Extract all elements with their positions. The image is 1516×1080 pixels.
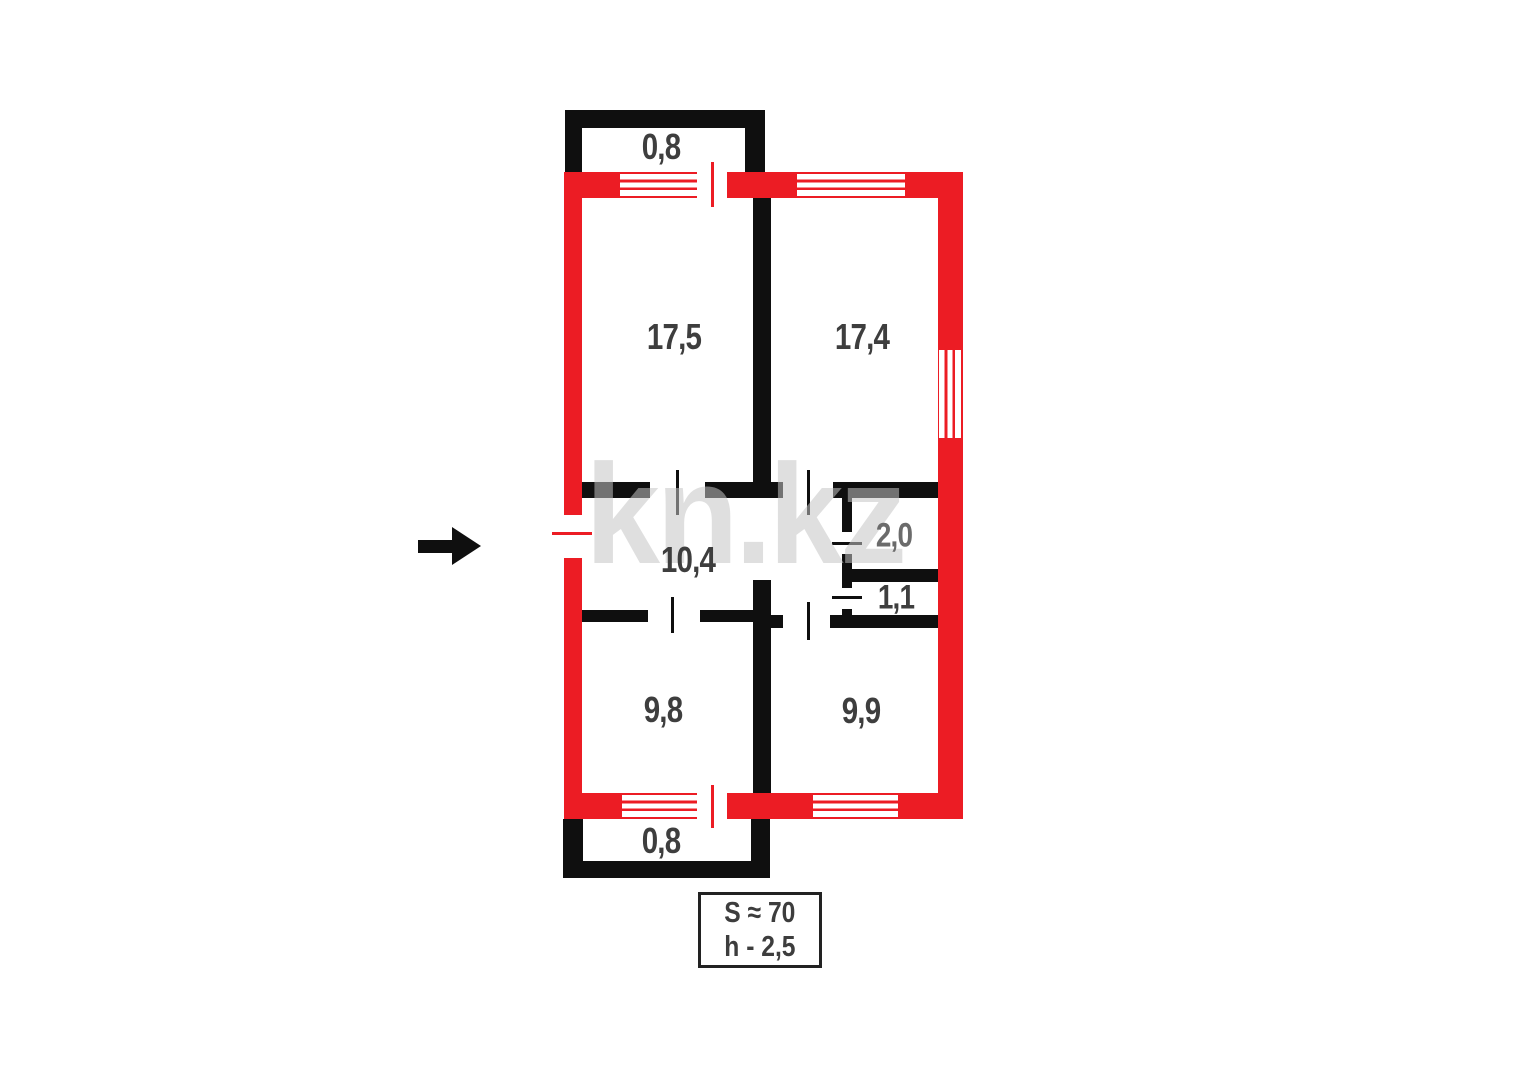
window-top-left	[620, 174, 697, 196]
window-right-wall	[939, 350, 961, 438]
watermark: kn.kz	[585, 442, 918, 588]
door-room-17-4-tick	[807, 470, 810, 515]
door-room-9-9-tick	[807, 602, 810, 640]
door-room-9-8-opening	[648, 610, 700, 622]
balcony-door-bottom-tick	[711, 785, 714, 828]
window-top-right	[797, 174, 905, 196]
door-room-9-8-tick	[671, 597, 674, 633]
floor-plan: kn.kz 0,8 17,5 17,4 10,4 2,0 1,1 9,8 9,9…	[0, 0, 1516, 1080]
door-wc-tick	[832, 596, 862, 599]
door-room-17-5-tick	[676, 470, 679, 515]
door-bathroom-tick	[832, 542, 862, 545]
room-area-bathroom: 2,0	[876, 517, 912, 556]
info-box: S ≈ 70 h - 2,5	[698, 892, 822, 968]
ceiling-height-label: h - 2,5	[724, 930, 795, 964]
entrance-door-tick	[552, 532, 592, 535]
total-area-label: S ≈ 70	[724, 896, 795, 930]
exterior-wall-right	[938, 172, 963, 819]
entrance-arrow-head	[452, 527, 481, 565]
room-area-balcony-bottom: 0,8	[642, 820, 681, 862]
exterior-wall-left	[564, 172, 582, 819]
entrance-arrow-shaft	[418, 540, 454, 553]
room-area-wc: 1,1	[878, 579, 914, 618]
interior-wall-central-upper	[753, 198, 771, 498]
room-area-9-9: 9,9	[842, 690, 881, 732]
balcony-top-wall-left	[565, 110, 582, 172]
window-bottom-left	[622, 795, 697, 817]
room-area-17-5: 17,5	[647, 316, 701, 358]
room-area-balcony-top: 0,8	[642, 126, 681, 168]
room-area-17-4: 17,4	[835, 316, 889, 358]
balcony-top-wall-right	[745, 110, 765, 172]
balcony-bottom-wall-right	[751, 819, 770, 878]
window-bottom-right	[813, 795, 898, 817]
room-area-9-8: 9,8	[644, 689, 683, 731]
room-area-hallway: 10,4	[661, 539, 715, 581]
interior-wall-central-lower	[753, 580, 771, 793]
balcony-bottom-wall-bottom	[563, 861, 770, 878]
balcony-door-top-tick	[711, 162, 714, 207]
floor-plan-page: { "plan": { "watermark": "kn.kz", "rooms…	[0, 0, 1516, 1080]
entrance-door-opening	[564, 515, 582, 558]
